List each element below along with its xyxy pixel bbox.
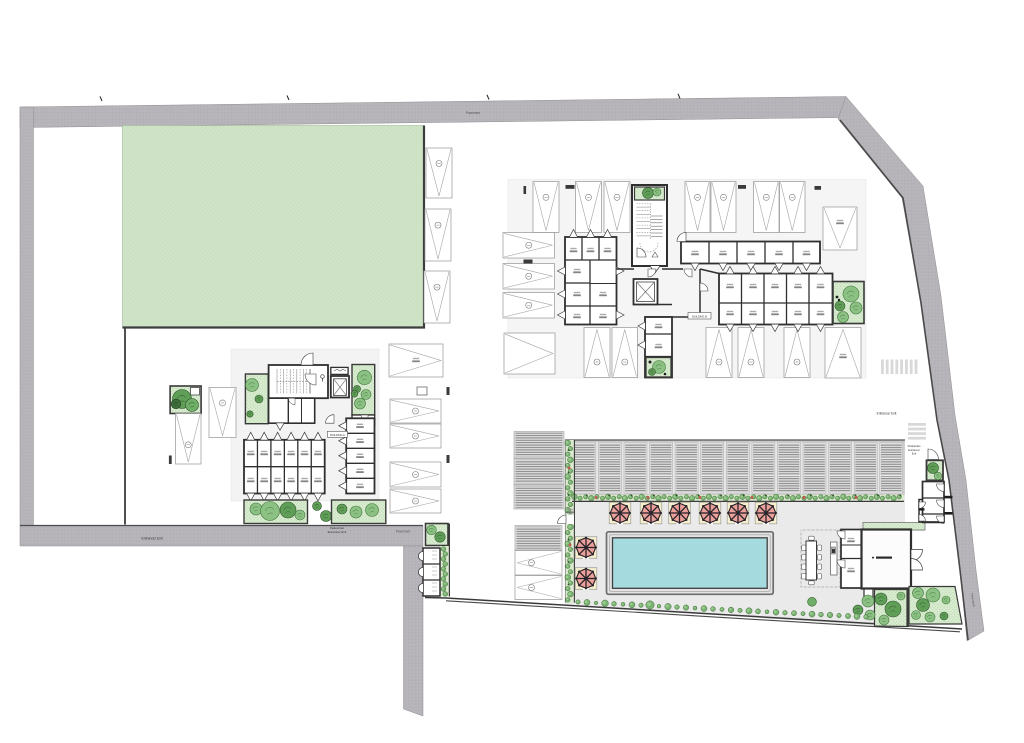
svg-text:Entrance/ Exit: Entrance/ Exit — [877, 412, 897, 416]
svg-text:Pedestrian: Pedestrian — [908, 444, 921, 448]
svg-text:BUILDING A: BUILDING A — [330, 433, 345, 437]
svg-text:Exit: Exit — [912, 452, 917, 456]
svg-text:Pavement: Pavement — [396, 530, 410, 534]
svg-text:Entrance/ Exit: Entrance/ Exit — [141, 537, 162, 541]
svg-text:BUILDING B: BUILDING B — [692, 314, 707, 318]
svg-text:Pavement: Pavement — [466, 111, 480, 115]
svg-text:Entrance/: Entrance/ — [908, 448, 920, 452]
svg-text:Entrance/ Exit: Entrance/ Exit — [328, 530, 347, 534]
